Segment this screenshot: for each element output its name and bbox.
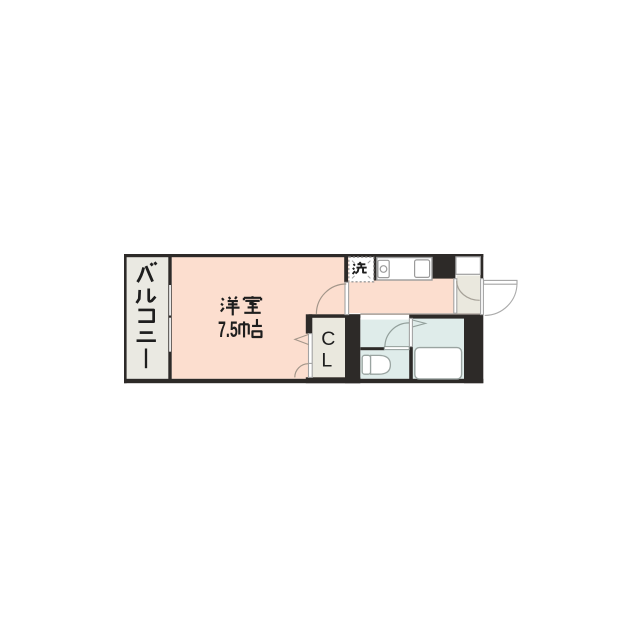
svg-text:C: C bbox=[321, 328, 335, 350]
svg-text:L: L bbox=[321, 350, 332, 372]
svg-text:7.5: 7.5 bbox=[218, 317, 238, 342]
